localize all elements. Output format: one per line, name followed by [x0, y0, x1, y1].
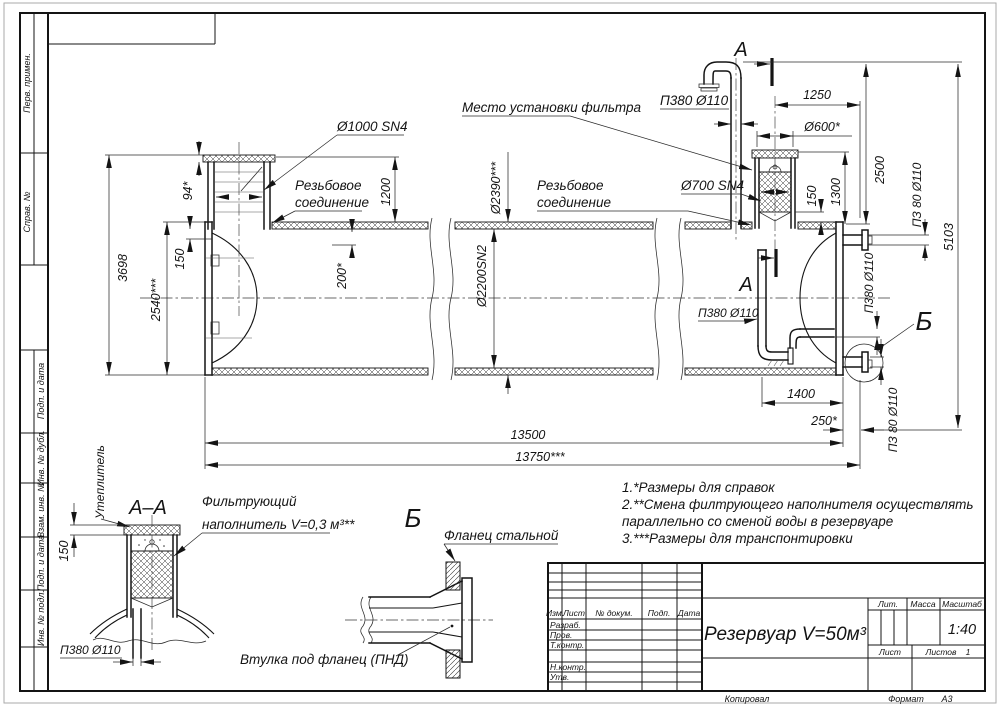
note-line-3: параллельно со сменой воды в резервуаре — [622, 514, 893, 529]
listov-value: 1 — [966, 647, 971, 657]
manhole-neck — [203, 142, 275, 316]
margin-label-inv-dubl: Инв. № дубл. — [36, 430, 46, 485]
margin-label-podp-data-2: Подп. и дата — [36, 535, 46, 591]
end-nozzles: Б — [843, 230, 933, 382]
dim-1300: 1300 — [829, 178, 843, 206]
label-d1000: Ø1000 SN4 — [336, 119, 408, 134]
masshtab-label: Масштаб — [942, 599, 983, 609]
listov-label: Листов — [925, 647, 958, 657]
label-thread-left-1: Резьбовое — [295, 178, 361, 193]
dim-5103: 5103 — [942, 223, 956, 251]
col-data: Дата — [677, 608, 701, 618]
label-filter-filler-1: Фильтрующий — [202, 494, 297, 509]
dim-2540: 2540*** — [149, 278, 163, 323]
dim-250: 250* — [810, 414, 838, 428]
section-letter-bottom: А — [738, 274, 752, 296]
massa-label: Масса — [910, 599, 935, 609]
label-pz80-top: ПЗ 80 Ø110 — [910, 162, 924, 227]
margin-label-inv-podl: Инв. № подл. — [36, 590, 46, 646]
row-prov: Пров. — [550, 630, 572, 640]
dim-1250: 1250 — [803, 88, 831, 102]
dim-150-filter: 150 — [805, 186, 819, 207]
col-izm: Изм. — [546, 608, 564, 618]
margin-label-podp-data-1: Подп. и дата — [36, 363, 46, 419]
vent-pipe — [699, 58, 758, 240]
dim-2500: 2500 — [873, 156, 887, 185]
detail-b-title: Б — [405, 503, 422, 533]
label-p380-vent: П380 Ø110 — [660, 93, 729, 108]
kopiroval-label: Копировал — [725, 694, 770, 704]
note-line-1: 1.*Размеры для справок — [622, 480, 775, 495]
label-filter-filler-2: наполнитель V=0,3 м³** — [202, 517, 355, 532]
label-pz80-bottom: ПЗ 80 Ø110 — [886, 387, 900, 452]
note-line-2: 2.**Смена филтрующего наполнителя осущес… — [621, 497, 974, 512]
section-aa-view: А–А Утеплитель 150 П380 Ø110 Фильтрующий… — [57, 445, 355, 666]
col-podp: Подп. — [648, 608, 671, 618]
dim-13500: 13500 — [511, 428, 546, 442]
row-razrab: Разраб. — [550, 620, 581, 630]
label-thread-mid-1: Резьбовое — [537, 178, 603, 193]
dim-d2390: Ø2390*** — [489, 161, 503, 215]
label-flange: Фланец стальной — [444, 528, 559, 543]
label-insulation: Утеплитель — [93, 445, 107, 520]
internal-dip-tube — [758, 250, 834, 366]
dim-3698: 3698 — [116, 254, 130, 282]
row-nkontr: Н.контр. — [550, 662, 586, 672]
label-p380-aa: П380 Ø110 — [60, 643, 121, 657]
label-sleeve: Втулка под фланец (ПНД) — [240, 652, 409, 667]
list-label: Лист — [878, 647, 901, 657]
tank-main-view — [140, 218, 893, 380]
dim-94: 94* — [181, 180, 195, 200]
section-aa-title: А–А — [128, 497, 167, 519]
col-list: Лист — [562, 608, 585, 618]
dim-d600: Ø600* — [803, 120, 841, 134]
title-block: Изм. Лист № докум. Подп. Дата Разраб. Пр… — [546, 563, 985, 691]
section-letter-top: А — [733, 39, 747, 61]
margin-label-perv-primen: Перв. примен. — [22, 53, 32, 113]
row-utv: Утв. — [549, 672, 569, 682]
notes: 1.*Размеры для справок 2.**Смена филтрую… — [621, 480, 974, 546]
dim-200: 200* — [335, 262, 349, 290]
dim-13750: 13750*** — [515, 450, 565, 464]
dim-150-left: 150 — [173, 249, 187, 270]
row-tkontr: Т.контр. — [550, 640, 584, 650]
dim-1400: 1400 — [787, 387, 815, 401]
label-p380-inner: П380 Ø110 — [698, 306, 759, 320]
lit-label: Лит. — [877, 599, 898, 609]
engineering-drawing: Перв. примен. Справ. № Подп. и дата Инв.… — [0, 0, 1000, 707]
detail-b-letter: Б — [916, 306, 933, 336]
doc-title: Резервуар V=50м³ — [704, 624, 867, 645]
drawing-sheet: Перв. примен. Справ. № Подп. и дата Инв.… — [0, 0, 1000, 707]
dim-d2200: Ø2200SN2 — [475, 245, 489, 308]
format-label: Формат — [888, 694, 924, 704]
scale-value: 1:40 — [948, 622, 976, 638]
label-thread-mid-2: соединение — [537, 195, 611, 210]
col-doc: № докум. — [595, 608, 632, 618]
format-value: А3 — [940, 694, 952, 704]
label-d700: Ø700 SN4 — [680, 178, 744, 193]
label-p380-right: П380 Ø110 — [862, 252, 876, 313]
dim-1200: 1200 — [379, 178, 393, 206]
dimensions-main: 94* 150 3698 2540*** 1200 200* Ø2390*** … — [105, 62, 962, 469]
margin-label-sprav-n: Справ. № — [22, 191, 32, 232]
margin-label-vzam-inv: Взам. инв. № — [36, 482, 46, 538]
dim-150-aa: 150 — [57, 541, 71, 562]
filter-unit — [752, 96, 798, 250]
label-thread-left-2: соединение — [295, 195, 369, 210]
note-line-4: 3.***Размеры для транспонтировки — [622, 531, 853, 546]
label-filter-place: Место установки фильтра — [462, 100, 642, 115]
